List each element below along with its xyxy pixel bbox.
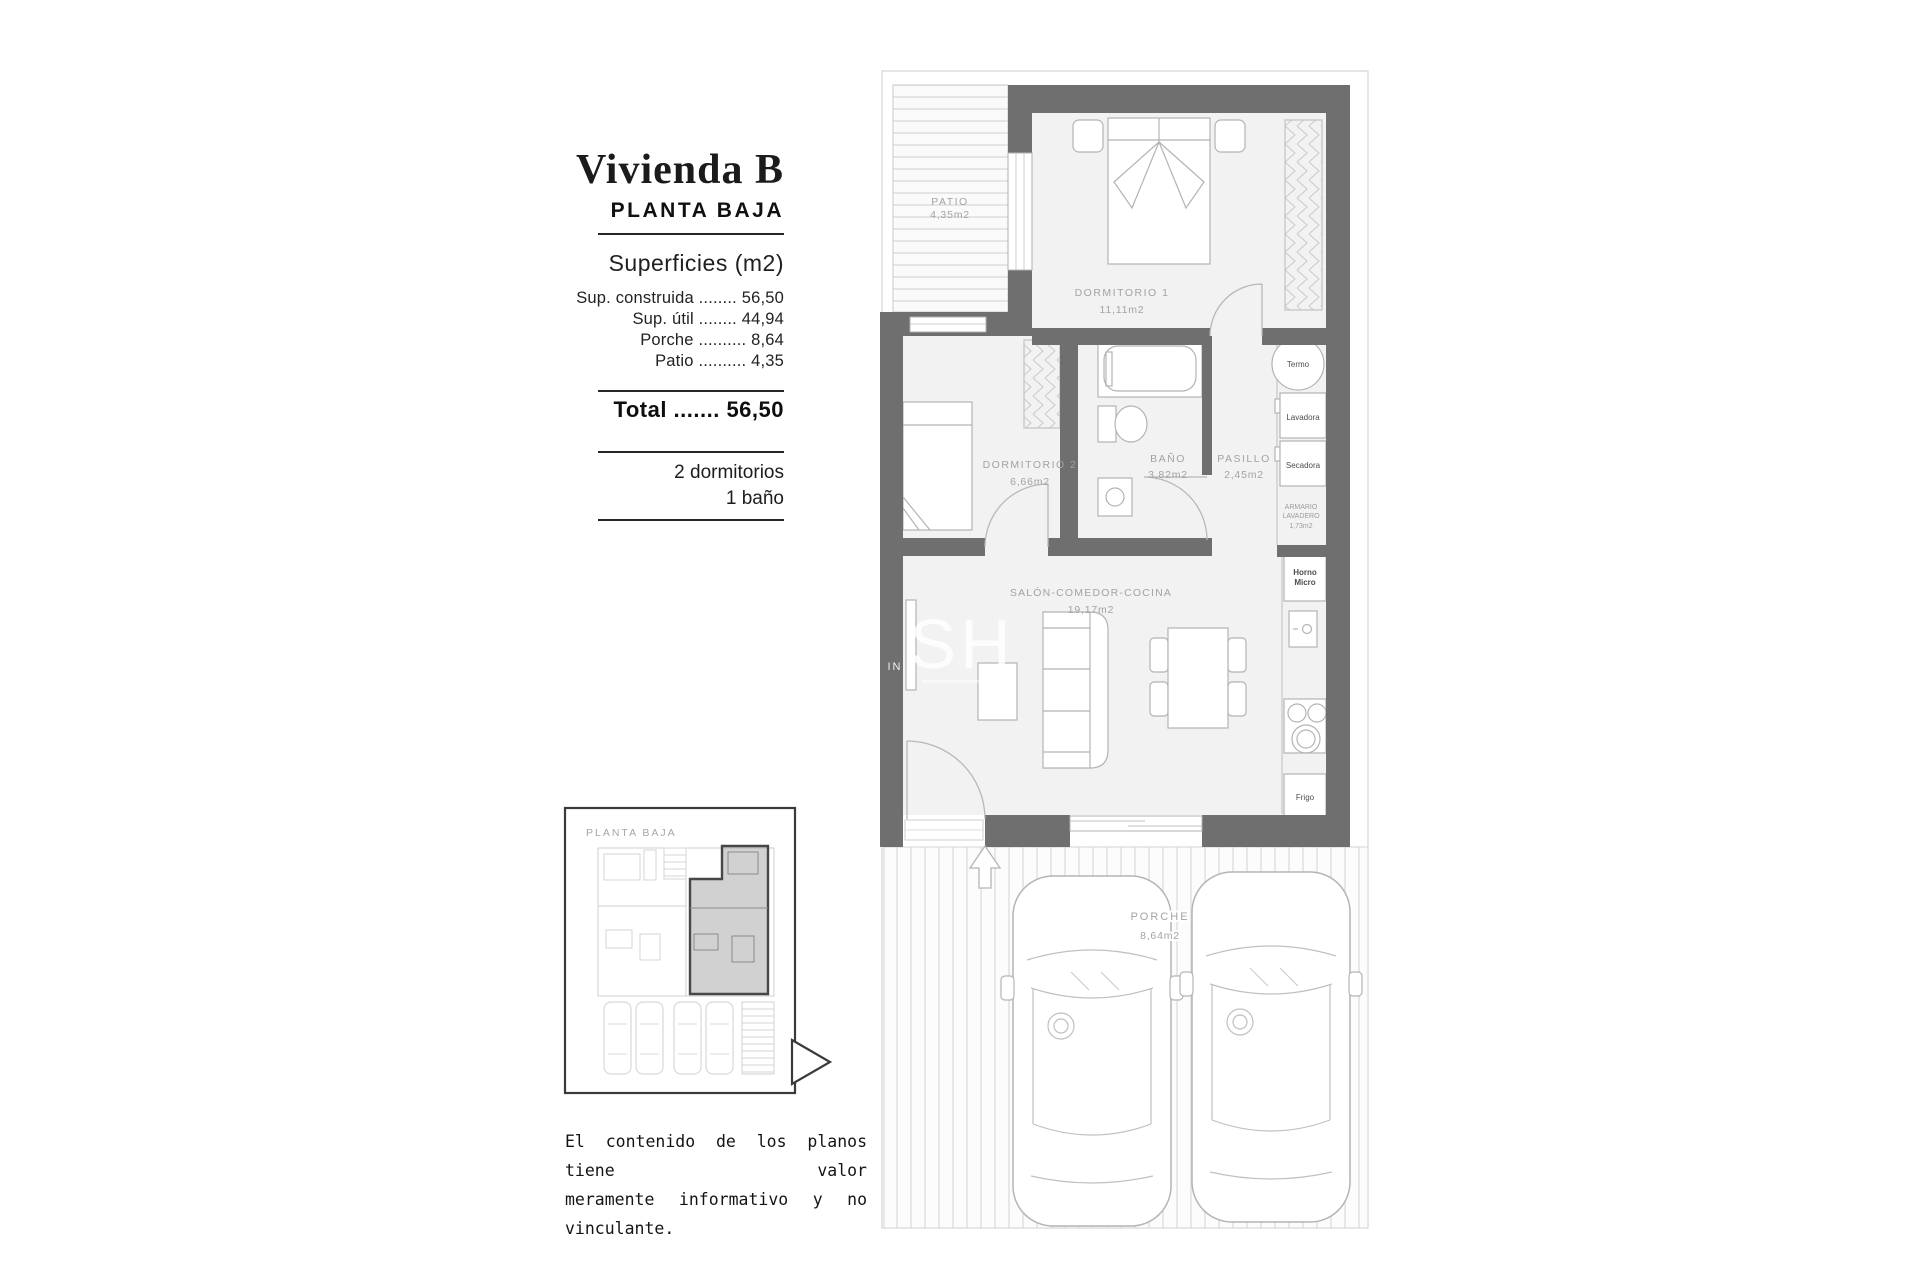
bano-label: BAÑO	[1150, 452, 1186, 465]
wardrobe-dormitorio1	[1285, 120, 1322, 310]
toilet	[1098, 406, 1147, 442]
cooktop	[1284, 699, 1326, 753]
pasillo-area: 2,45m2	[1224, 469, 1264, 481]
sofa	[1043, 612, 1108, 768]
armario-label-1: ARMARIO	[1285, 504, 1318, 511]
inset-stairs	[742, 1002, 774, 1074]
horno-label-2: Micro	[1294, 578, 1315, 587]
watermark-main: SH	[909, 605, 1014, 683]
patio-label: PATIO	[931, 196, 968, 208]
bano-area: 3,82m2	[1148, 469, 1188, 481]
disclaimer: El contenido de los planos tiene valor m…	[565, 1127, 867, 1243]
salon-sliding-door	[1070, 816, 1202, 831]
car-1	[1001, 876, 1183, 1226]
disclaimer-line-2: meramente informativo y no vinculante.	[565, 1185, 867, 1243]
kitchen-sink	[1289, 611, 1317, 647]
patio-window	[1008, 153, 1032, 270]
inset-plan: PLANTA BAJA	[565, 808, 830, 1093]
salon-area: 19,17m2	[1068, 604, 1114, 616]
car-2	[1180, 872, 1362, 1222]
porche-label: PORCHE	[1130, 911, 1189, 923]
floor-plan-svg: PORCHE 8,64m2 PATIO 4,35m2	[0, 0, 1920, 1280]
inset-pointer-icon	[792, 1040, 830, 1084]
inset-label: PLANTA BAJA	[586, 827, 677, 839]
armario-label-2: LAVADERO	[1282, 513, 1320, 520]
patio-area: 4,35m2	[930, 209, 970, 221]
porch-deck: PORCHE 8,64m2	[884, 847, 1368, 1228]
armario-label-3: 1,73m2	[1289, 523, 1312, 530]
bed-dormitorio2	[903, 402, 972, 530]
wardrobe-dormitorio2	[1024, 340, 1060, 428]
disclaimer-line-1: El contenido de los planos tiene valor	[565, 1127, 867, 1185]
floorplan-sheet: Vivienda B PLANTA BAJA Superficies (m2) …	[0, 0, 1920, 1280]
pasillo-label: PASILLO	[1217, 453, 1271, 465]
dormitorio2-area: 6,66m2	[1010, 476, 1050, 488]
frigo-label: Frigo	[1296, 793, 1315, 802]
salon-label: SALÓN-COMEDOR-COCINA	[1010, 586, 1172, 599]
watermark-side: IN	[888, 661, 903, 673]
patio: PATIO 4,35m2	[893, 85, 1008, 312]
secadora-label: Secadora	[1286, 461, 1321, 470]
bathtub	[1098, 340, 1202, 397]
horno-label-1: Horno	[1293, 568, 1317, 577]
termo-label: Termo	[1287, 360, 1310, 369]
dormitorio2-label: DORMITORIO 2	[983, 459, 1078, 471]
bathroom-sink	[1098, 478, 1132, 516]
dormitorio1-area: 11,11m2	[1100, 304, 1145, 316]
dormitorio1-label: DORMITORIO 1	[1075, 287, 1170, 299]
porche-area: 8,64m2	[1140, 930, 1180, 942]
lavadora-label: Lavadora	[1286, 413, 1320, 422]
